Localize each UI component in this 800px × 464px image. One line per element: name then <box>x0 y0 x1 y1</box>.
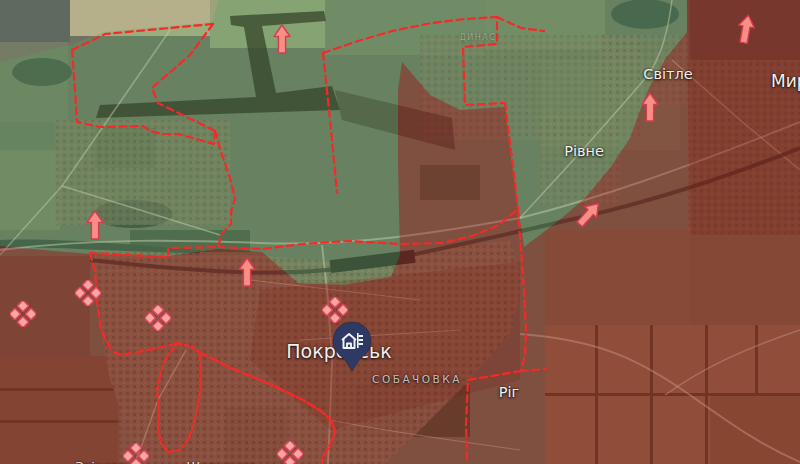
clash-diamond-icon <box>10 301 36 327</box>
clash-diamond-icon <box>123 443 149 464</box>
advance-arrow-icon <box>273 24 291 54</box>
control-zones-overlay <box>0 0 800 464</box>
clash-diamond-icon <box>145 305 171 331</box>
advance-arrow-icon <box>238 257 256 287</box>
advance-arrow-icon <box>86 210 104 240</box>
city-buildings-icon <box>330 320 374 374</box>
advance-arrow-icon <box>641 92 659 122</box>
map-canvas[interactable]: ПокровськСОБАЧОВКАРівнеСвітлеМирноградРі… <box>0 0 800 464</box>
clash-diamond-icon <box>277 441 303 464</box>
clash-diamond-icon <box>75 280 101 306</box>
